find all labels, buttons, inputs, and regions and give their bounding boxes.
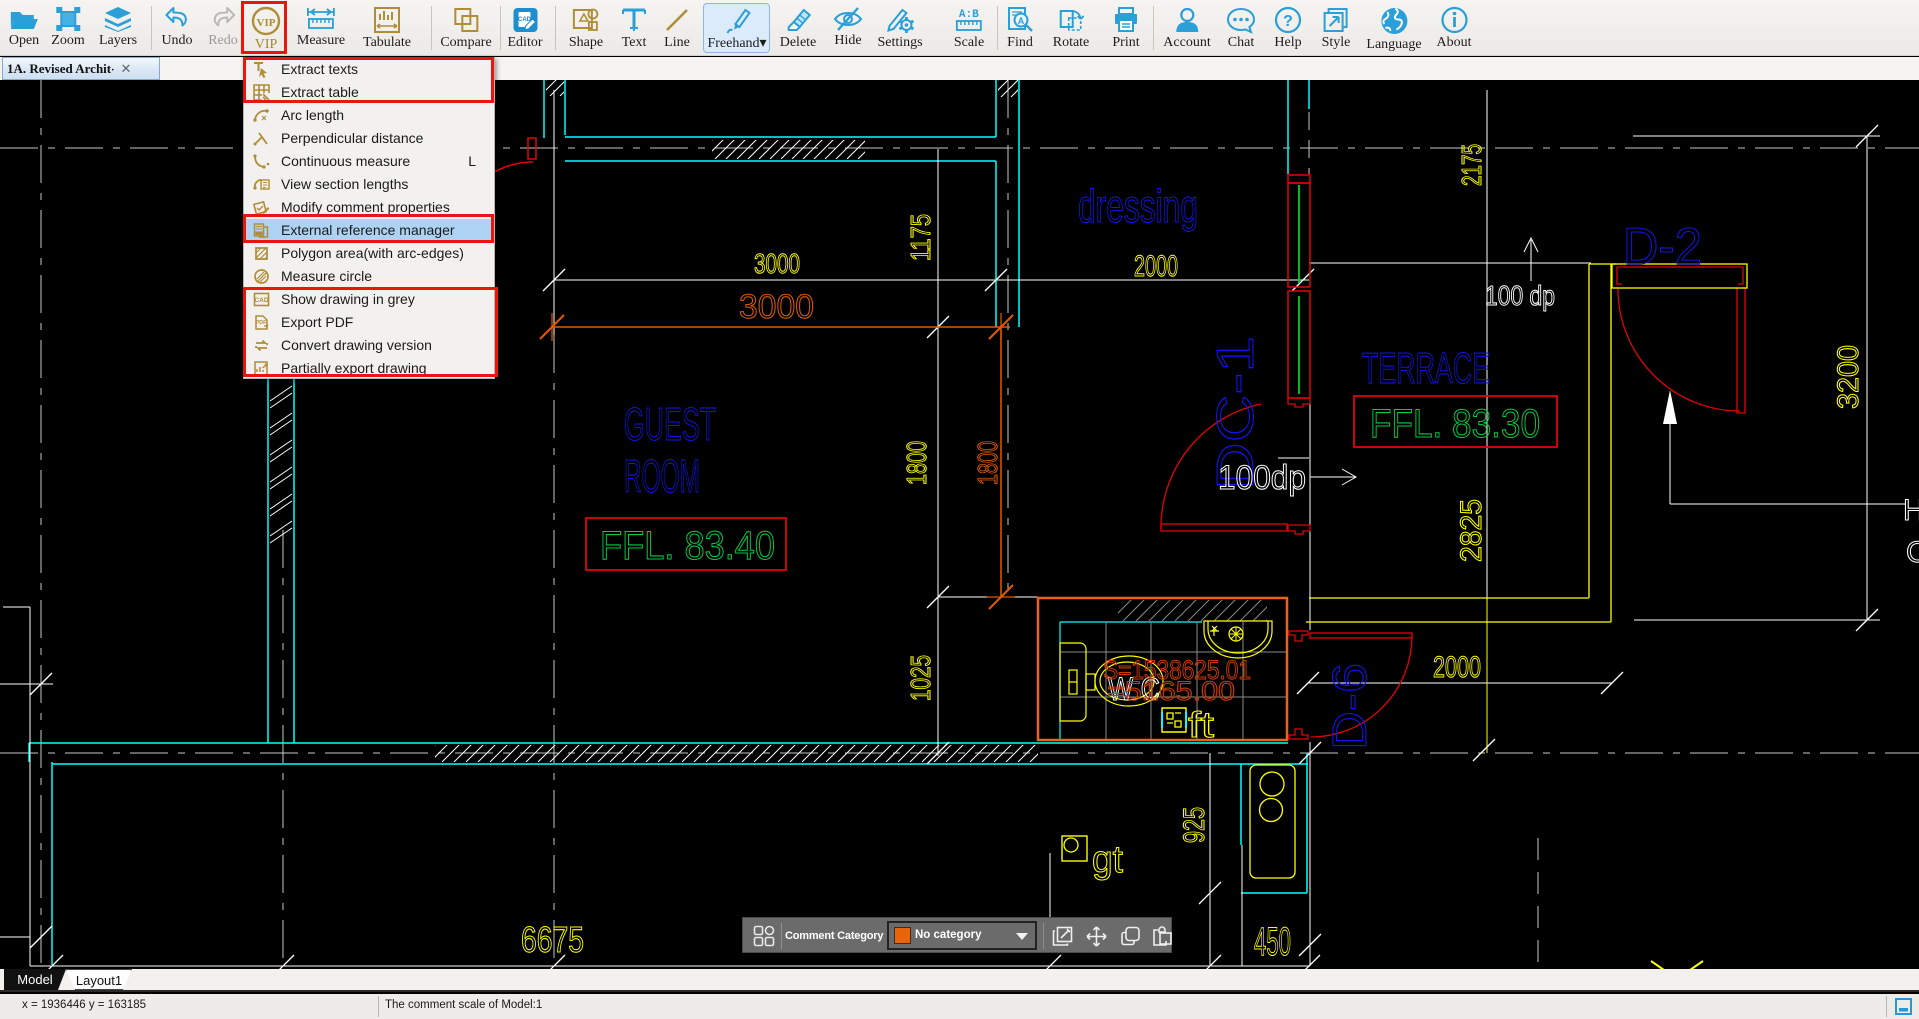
svg-text:1800: 1800 — [972, 441, 1003, 485]
svg-text:2000: 2000 — [1433, 651, 1481, 684]
svg-text:GUEST: GUEST — [624, 398, 716, 450]
svg-text:H: H — [1903, 494, 1919, 527]
svg-text:gt: gt — [1092, 839, 1123, 881]
svg-text:3000: 3000 — [754, 248, 800, 279]
svg-text:1025: 1025 — [905, 655, 936, 701]
svg-text:3200: 3200 — [1832, 345, 1865, 409]
svg-text:=5165.00: =5165.00 — [1107, 676, 1235, 706]
svg-text:TERRACE: TERRACE — [1362, 344, 1490, 393]
svg-text:D-2: D-2 — [1623, 218, 1702, 276]
svg-text:?: ? — [1283, 13, 1293, 30]
svg-text:100dp: 100dp — [1218, 459, 1306, 497]
svg-text:450: 450 — [1254, 920, 1291, 964]
svg-text:ROOM: ROOM — [624, 450, 700, 502]
svg-text:A:B: A:B — [959, 9, 979, 21]
svg-text:100 dp: 100 dp — [1485, 280, 1555, 311]
svg-text:2000: 2000 — [1134, 250, 1178, 283]
svg-text:2175: 2175 — [1456, 144, 1487, 186]
svg-text:2825: 2825 — [1455, 499, 1488, 562]
svg-text:6675: 6675 — [521, 919, 584, 960]
svg-text:3000: 3000 — [739, 288, 814, 326]
svg-text:1175: 1175 — [905, 214, 936, 261]
svg-text:FFL. 83.40: FFL. 83.40 — [600, 524, 775, 568]
svg-text:925: 925 — [1178, 807, 1211, 843]
svg-text:C: C — [1906, 536, 1919, 569]
svg-text:A: A — [1018, 16, 1025, 26]
svg-text:FFL. 83.30: FFL. 83.30 — [1370, 402, 1540, 446]
svg-text:dressing: dressing — [1078, 180, 1198, 232]
svg-text:D-6: D-6 — [1324, 663, 1377, 750]
svg-text:ft: ft — [1188, 704, 1214, 745]
svg-text:1800: 1800 — [901, 441, 932, 485]
